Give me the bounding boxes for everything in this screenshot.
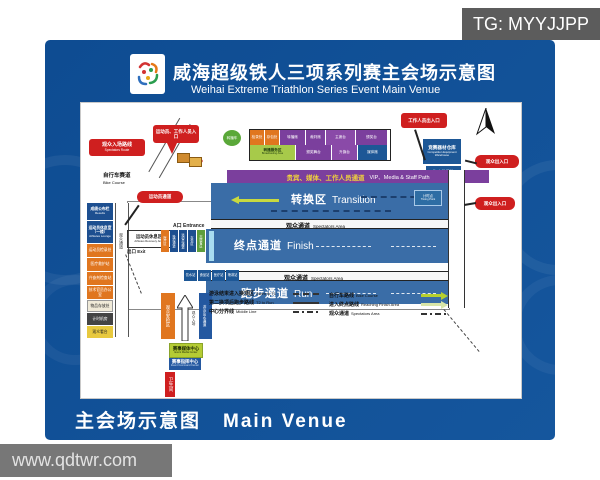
slat-transition-path: 换项通道 <box>170 230 178 252</box>
equipment-warehouse: 竞赛器材仓库 Competition Equipment Warehouse <box>423 139 461 164</box>
facility-officials: 技术官员办公室 <box>87 286 113 299</box>
service-station: 喷淋站 <box>226 270 239 281</box>
facility-results: 成绩公布栏Results <box>87 203 113 220</box>
finish-zone: 终点通道Finish <box>206 229 448 263</box>
callout-athletes-path: 运动员通道 <box>137 191 183 203</box>
callout-spectator-gate-1: 观众出入口 <box>475 155 519 168</box>
finish-line <box>209 231 214 261</box>
venue-diagram: 自行车赛道 Bike Course 观众入场路线 Spectators Rout… <box>80 102 522 399</box>
north-arrow-icon <box>475 108 497 141</box>
legend-arrow-finish <box>421 301 448 309</box>
legend-line-dashed <box>293 293 319 295</box>
stage-area: 检录处 存包处 转播席 裁判席 主席台 颁奖台 转播服务区 Broadcasti… <box>249 129 391 161</box>
service-station: 食品站 <box>198 270 211 281</box>
command-center: 赛事指挥中心 Event Command Center <box>169 358 201 370</box>
slat-volunteers: 志愿者区 <box>197 230 205 252</box>
finish-dash <box>316 246 371 247</box>
callout-athletes-entrance: 运动员、工作人员入口 <box>153 125 199 143</box>
blue-panel: 威海超级铁人三项系列赛主会场示意图 Weihai Extreme Triathl… <box>45 40 555 440</box>
legend-item: 进入终点路线Reaching Finish Area <box>329 300 448 309</box>
facility-grandstand: 观众看台 <box>87 326 113 338</box>
facility-checkin: 运动员检录处 <box>87 244 113 257</box>
security-check-zone: 观众安检区 <box>161 293 175 339</box>
legend-line-dashdot <box>421 313 447 315</box>
legend-line-solid <box>293 302 319 304</box>
poster-title-en: Weihai Extreme Triathlon Series Event Ma… <box>191 84 440 96</box>
bike-course-label: 自行车赛道 Bike Course <box>103 173 131 185</box>
legend-arrow-bike <box>421 292 448 300</box>
facility-medical: 医疗救护站 <box>87 258 113 271</box>
exit-label: 出口 Exit <box>127 249 146 255</box>
callout-spectators-route: 观众入场路线 Spectators Route <box>89 139 145 156</box>
logo-swirl-icon <box>134 58 162 90</box>
callout-spectator-gate-2: 观众出入口 <box>475 197 515 210</box>
legend-item: 观众通道Spectators Area <box>329 309 448 318</box>
spectators-strip-2: 观众通道Spectators Area <box>206 271 448 281</box>
slat-bag-storage: 存包区 <box>188 230 196 252</box>
stage-row-2: 转播服务区 Broadcasting Area 颁奖舞台 升旗台 媒体席 <box>250 145 390 160</box>
site-watermark: www.qdtwr.com <box>0 444 172 477</box>
poster-title-cn: 威海超级铁人三项系列赛主会场示意图 <box>173 59 496 85</box>
facility-column: 成绩公布栏Results 运动员休息室（一楼）Athletes Lounge 运… <box>87 203 113 339</box>
spectators-strip-1: 观众通道Spectators Area <box>211 219 448 229</box>
legend-left: 游泳结束进入换项区Swim to T1 第二换项后跑步路线T2 to Run 中… <box>209 289 319 316</box>
finish-dash <box>391 246 436 247</box>
legend-item: 自行车路线Bike Course <box>329 291 448 300</box>
legend-right: 自行车路线Bike Course 进入终点路线Reaching Finish A… <box>329 291 448 318</box>
callout-pointer <box>167 143 177 154</box>
spectator-entry-label: 观众入场 <box>191 299 198 337</box>
tg-watermark-badge: TG: MYYJJPP <box>462 8 600 40</box>
transition-dash <box>271 210 391 212</box>
callout-staff-gate: 工作人员出入口 <box>401 113 447 128</box>
footer-caption-en: Main Venue <box>223 411 348 432</box>
slat-athletes-path: 运动员通道 <box>179 230 187 252</box>
supply-box <box>189 157 202 167</box>
media-center: 赛事媒体中心 Event Media Center <box>169 343 203 358</box>
facility-storage: 物品存放处 <box>87 300 113 312</box>
legend-line-dashdot <box>293 311 319 313</box>
facility-timing-room: 计时机房 <box>87 313 113 325</box>
legend-item: 第二换项后跑步路线T2 to Run <box>209 298 319 307</box>
event-logo <box>130 54 165 94</box>
footer-caption: 主会场示意图Main Venue <box>75 406 370 433</box>
restroom: 卫生间 <box>165 372 175 397</box>
transition-zone: 转换区Transition 计时点 Timing Point <box>211 183 448 219</box>
transition-arrow <box>231 196 279 204</box>
facility-doping: 兴奋剂检查站 <box>87 272 113 285</box>
tv-van-area: 转播车 <box>223 130 241 146</box>
service-station: 饮水站 <box>184 270 197 281</box>
legend-item: 游泳结束进入换项区Swim to T1 <box>209 289 319 298</box>
timing-point: 计时点 Timing Point <box>414 190 442 206</box>
slat-medical: 医疗区 <box>161 230 169 252</box>
poster-root: { "page": { "tg_badge": "TG: MYYJJPP", "… <box>0 0 600 480</box>
walkway-label: 观众通道 <box>118 233 124 249</box>
service-station: 医疗站 <box>212 270 225 281</box>
legend-item: 中心分界线Middle Line <box>209 307 319 316</box>
footer-caption-cn: 主会场示意图 <box>75 411 201 432</box>
facility-athletes-lounge: 运动员休息室（一楼）Athletes Lounge <box>87 221 113 243</box>
stage-row-1: 检录处 存包处 转播席 裁判席 主席台 颁奖台 <box>250 130 390 145</box>
entrance-a-label: A口 Entrance <box>173 222 204 229</box>
right-road <box>448 170 465 308</box>
road-dashed-path <box>443 309 479 352</box>
